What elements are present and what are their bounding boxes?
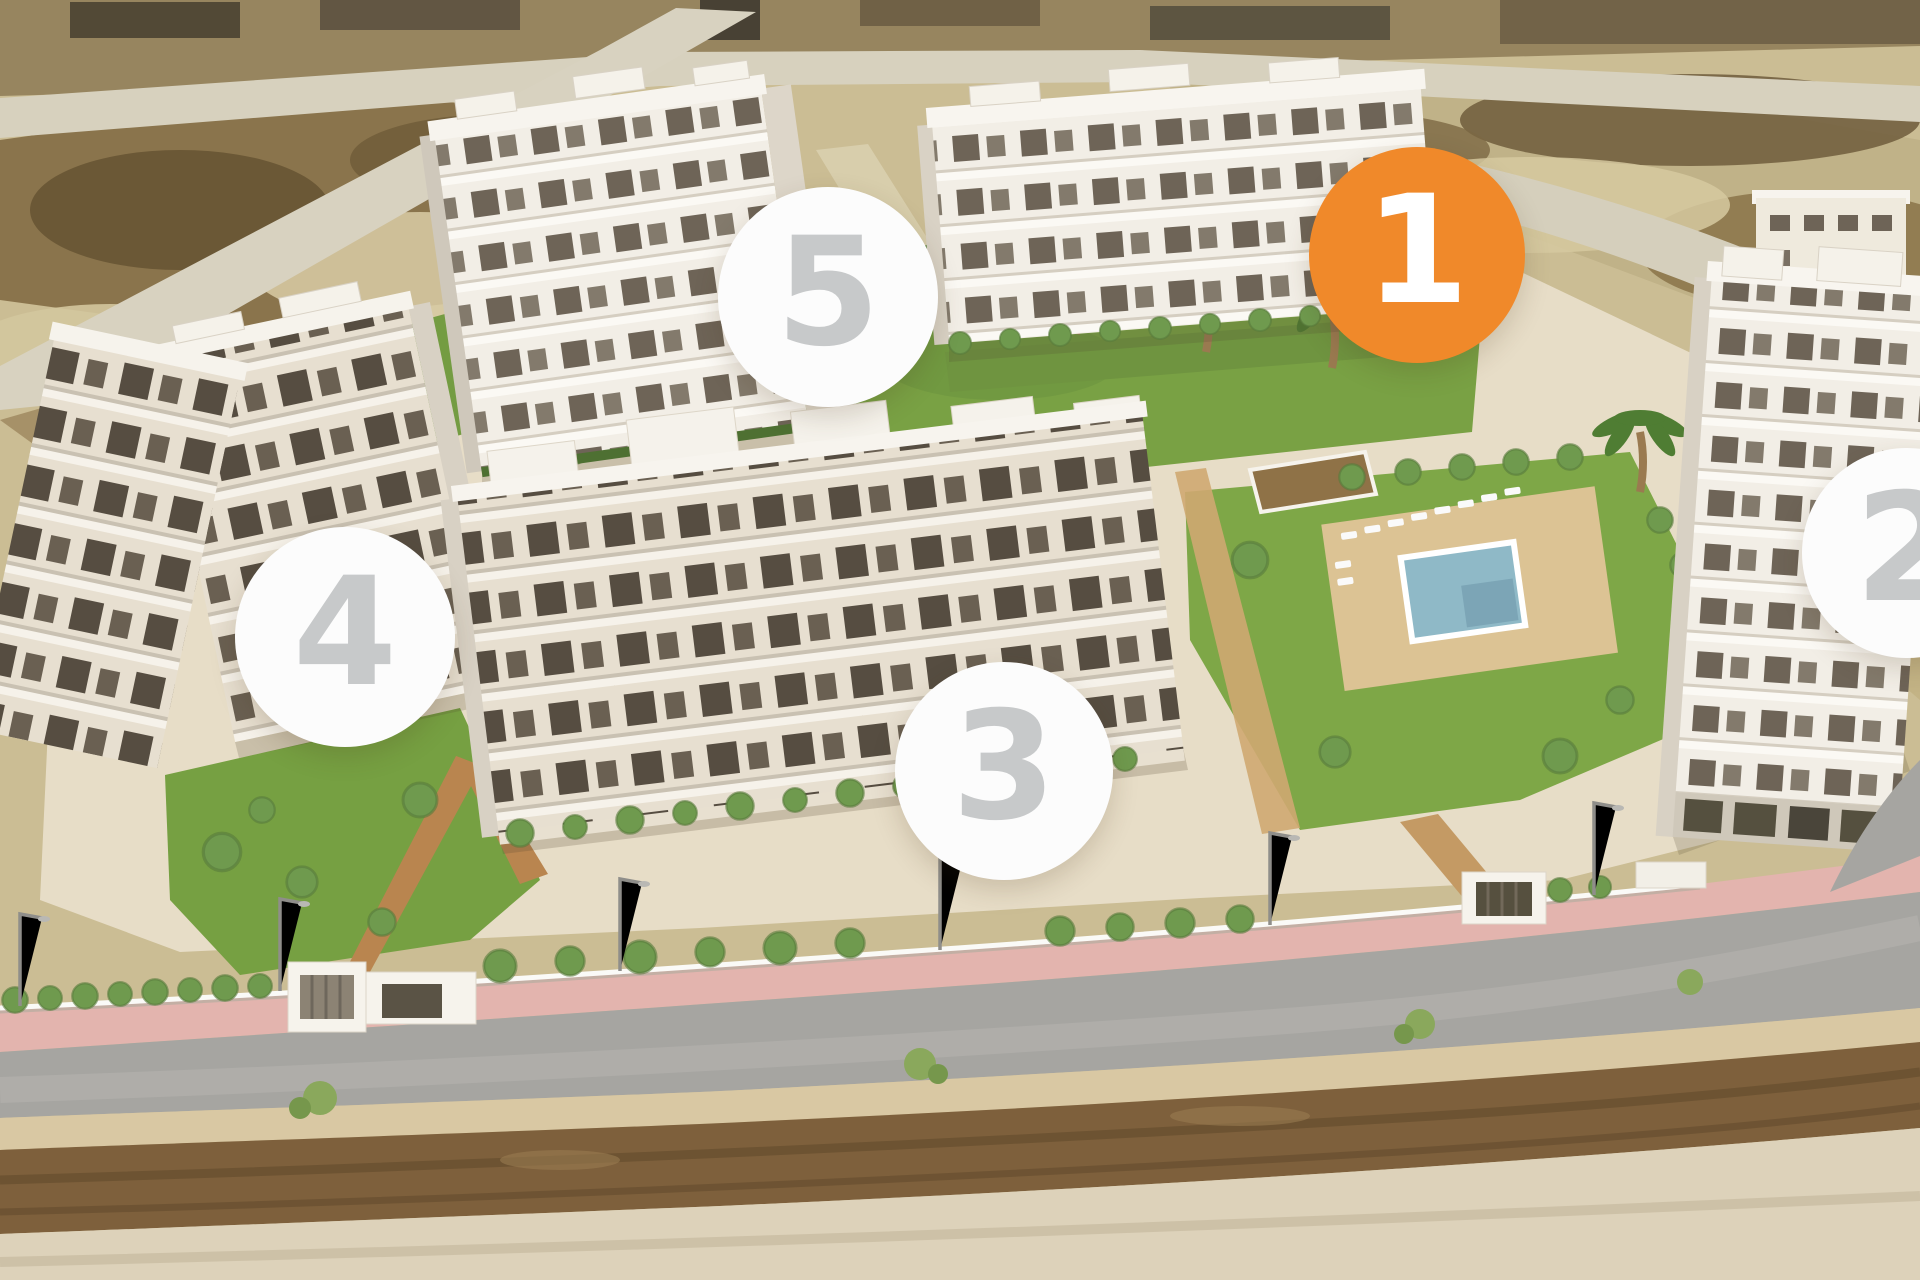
marker-building-4[interactable]: 4: [235, 527, 455, 747]
marker-number: 2: [1855, 474, 1920, 624]
marker-number: 5: [776, 218, 880, 368]
marker-number: 4: [293, 558, 397, 708]
aerial-render: 1 2 3 4 5: [0, 0, 1920, 1280]
marker-building-3[interactable]: 3: [895, 662, 1113, 880]
marker-number: 3: [952, 692, 1056, 842]
marker-building-5[interactable]: 5: [718, 187, 938, 407]
marker-building-1[interactable]: 1: [1309, 147, 1525, 363]
marker-number: 1: [1365, 176, 1469, 326]
entrance-gate-left: [288, 962, 476, 1032]
